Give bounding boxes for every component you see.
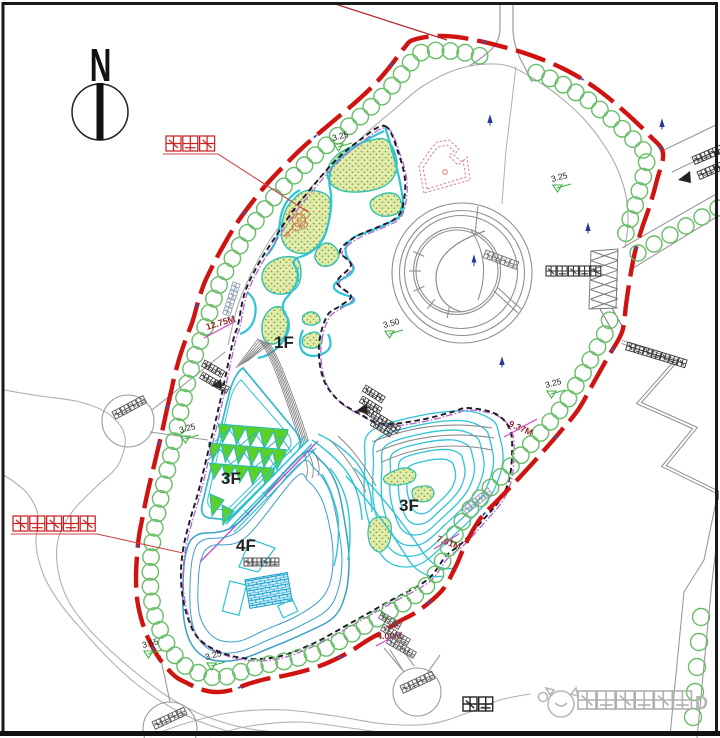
- svg-text:1F: 1F: [274, 333, 294, 352]
- svg-text:3F: 3F: [399, 496, 419, 515]
- svg-text:3F: 3F: [221, 469, 241, 488]
- svg-text:D: D: [695, 693, 708, 713]
- svg-text:4F: 4F: [236, 536, 256, 555]
